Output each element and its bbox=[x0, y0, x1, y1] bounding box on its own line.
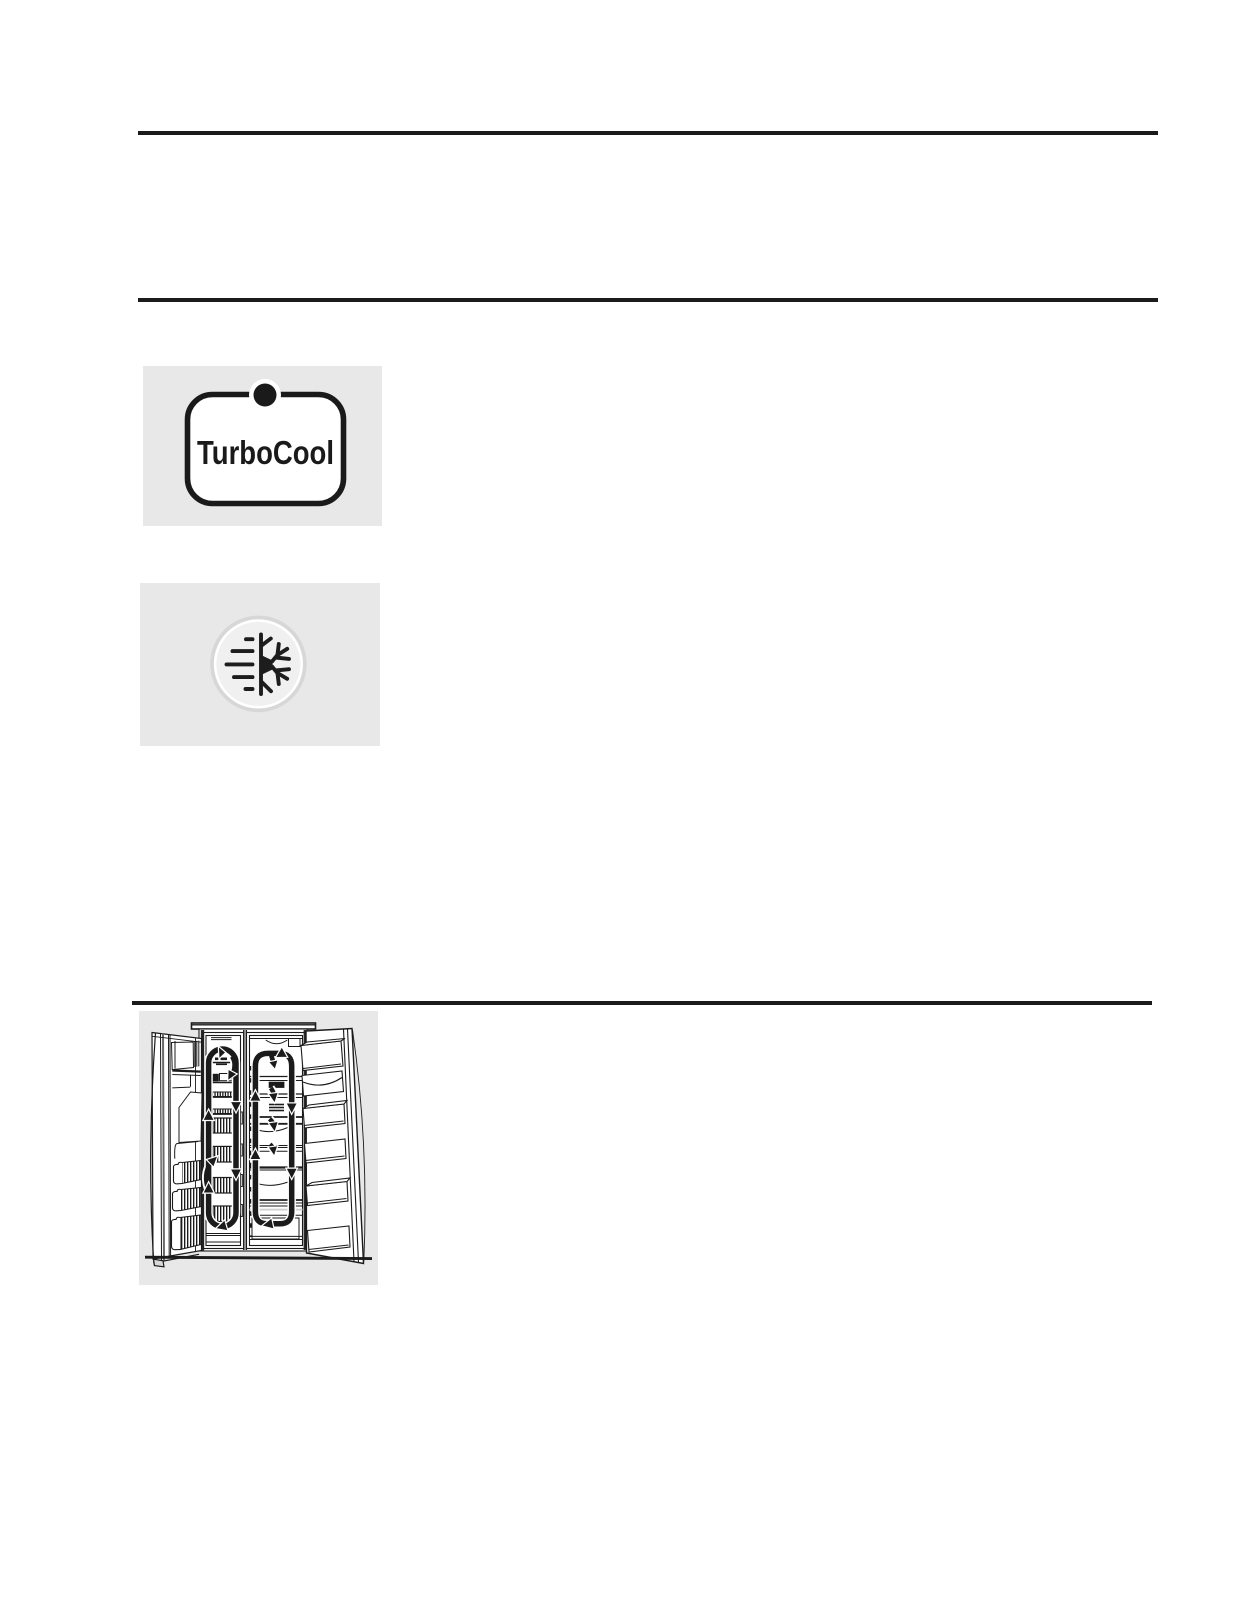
svg-text:TurboCool: TurboCool bbox=[197, 434, 334, 471]
